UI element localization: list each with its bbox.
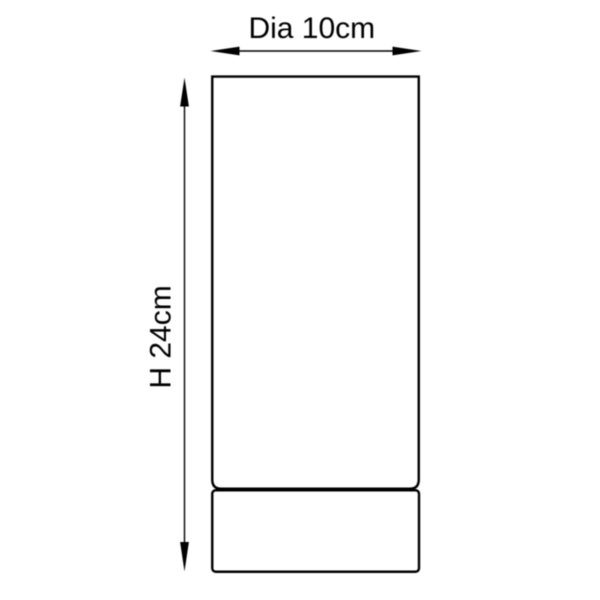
- svg-text:Dia 10cm: Dia 10cm: [248, 12, 375, 45]
- svg-text:H 24cm: H 24cm: [145, 285, 178, 388]
